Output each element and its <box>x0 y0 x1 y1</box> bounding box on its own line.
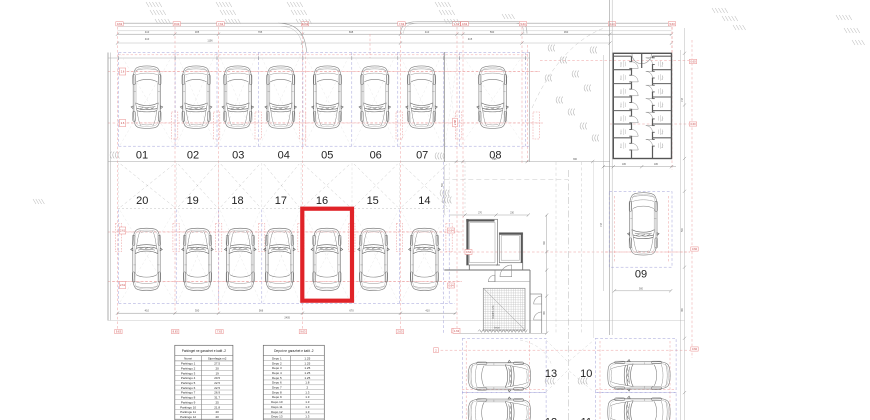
svg-text:20.5: 20.5 <box>214 376 220 380</box>
svg-text:2.61: 2.61 <box>120 283 126 287</box>
svg-text:Depo: Depo <box>620 89 622 94</box>
svg-text:1.63: 1.63 <box>454 329 460 333</box>
svg-text:Parkingu 12: Parkingu 12 <box>180 415 196 419</box>
svg-text:12: 12 <box>545 417 557 420</box>
svg-text:Depo: Depo <box>662 62 664 67</box>
svg-text:03: 03 <box>232 150 244 162</box>
svg-text:Parkingu 7: Parkingu 7 <box>181 391 196 395</box>
svg-text:Depo: Depo <box>662 103 664 108</box>
svg-text:Depo 12: Depo 12 <box>271 410 283 414</box>
svg-text:1.25: 1.25 <box>304 371 310 375</box>
svg-text:Depo: Depo <box>620 75 622 80</box>
svg-text:Depo: Depo <box>662 89 664 94</box>
svg-text:Parkingu 1: Parkingu 1 <box>181 362 196 366</box>
svg-text:0.60: 0.60 <box>690 60 696 64</box>
svg-text:500: 500 <box>639 287 644 290</box>
svg-text:19: 19 <box>187 195 199 207</box>
svg-text:Depo 10: Depo 10 <box>271 400 283 404</box>
svg-text:Depo 1: Depo 1 <box>272 356 282 360</box>
svg-text:Depo 7: Depo 7 <box>272 386 282 390</box>
svg-text:RAMPA 12%: RAMPA 12% <box>492 305 495 318</box>
svg-text:31.7: 31.7 <box>214 396 220 400</box>
svg-text:5.63: 5.63 <box>520 22 526 26</box>
svg-text:7.63: 7.63 <box>218 22 224 26</box>
svg-text:2.6: 2.6 <box>121 70 125 74</box>
svg-text:1.25: 1.25 <box>304 361 310 365</box>
svg-text:410: 410 <box>425 30 430 34</box>
svg-text:9.63: 9.63 <box>117 22 123 26</box>
svg-text:1.8: 1.8 <box>305 381 310 385</box>
svg-text:2.63: 2.63 <box>397 330 403 334</box>
svg-text:Depo: Depo <box>662 75 664 80</box>
svg-text:7.63: 7.63 <box>399 22 405 26</box>
svg-text:18: 18 <box>231 195 243 207</box>
svg-text:8.63: 8.63 <box>174 22 180 26</box>
svg-text:22.5: 22.5 <box>214 381 220 385</box>
svg-text:22.5: 22.5 <box>214 386 220 390</box>
svg-text:0.64: 0.64 <box>466 250 472 254</box>
svg-text:410: 410 <box>145 309 150 313</box>
svg-text:Depo: Depo <box>620 103 622 108</box>
svg-text:180: 180 <box>654 163 659 166</box>
svg-text:1.25: 1.25 <box>304 356 310 360</box>
svg-text:02: 02 <box>187 150 199 162</box>
svg-text:Parkingu 10: Parkingu 10 <box>180 405 196 409</box>
svg-text:566: 566 <box>259 309 264 313</box>
svg-text:Depo 3: Depo 3 <box>272 366 282 370</box>
svg-text:410: 410 <box>425 309 430 313</box>
svg-text:Depo 11: Depo 11 <box>271 405 282 409</box>
svg-text:Parkingu 2: Parkingu 2 <box>181 366 196 370</box>
svg-text:14: 14 <box>418 195 430 207</box>
svg-text:20: 20 <box>215 415 219 419</box>
svg-text:698: 698 <box>349 30 354 34</box>
svg-text:Depo 2: Depo 2 <box>272 361 282 365</box>
svg-text:Depo 9: Depo 9 <box>272 395 282 399</box>
svg-text:Depo 6: Depo 6 <box>272 381 282 385</box>
svg-text:Depo: Depo <box>620 62 622 67</box>
svg-text:5.63: 5.63 <box>669 22 675 26</box>
svg-text:Depo: Depo <box>620 130 622 135</box>
svg-text:Siperfaqja m2: Siperfaqja m2 <box>208 357 227 361</box>
svg-text:305: 305 <box>195 30 200 34</box>
svg-text:26.9: 26.9 <box>214 391 220 395</box>
svg-text:16: 16 <box>316 195 328 207</box>
svg-text:Parkingu 6: Parkingu 6 <box>181 386 196 390</box>
svg-text:Parkingu 11: Parkingu 11 <box>180 410 196 414</box>
svg-text:Parkingu 8: Parkingu 8 <box>181 396 196 400</box>
svg-text:360: 360 <box>564 30 569 34</box>
svg-text:1.3: 1.3 <box>305 390 310 394</box>
svg-text:04: 04 <box>278 150 290 162</box>
svg-text:1.3: 1.3 <box>305 415 310 419</box>
svg-text:795: 795 <box>258 30 263 34</box>
svg-text:Depo: Depo <box>662 130 664 135</box>
svg-text:7.63: 7.63 <box>217 330 223 334</box>
svg-text:Depo 5: Depo 5 <box>272 376 282 380</box>
svg-text:09: 09 <box>635 269 647 281</box>
svg-text:Depo: Depo <box>620 116 622 121</box>
svg-text:08: 08 <box>489 150 501 162</box>
svg-text:2.68: 2.68 <box>453 119 457 125</box>
svg-text:Parkingu 5: Parkingu 5 <box>181 381 196 385</box>
svg-text:1.3: 1.3 <box>305 405 310 409</box>
svg-text:410: 410 <box>145 30 150 34</box>
svg-text:0.63: 0.63 <box>462 22 468 26</box>
svg-text:25: 25 <box>215 400 219 404</box>
svg-text:beton: beton <box>494 326 501 329</box>
svg-text:20: 20 <box>215 366 219 370</box>
svg-text:Depo: Depo <box>620 144 622 149</box>
svg-text:Parkingu 9: Parkingu 9 <box>181 400 196 404</box>
svg-text:1.3: 1.3 <box>305 400 310 404</box>
svg-text:Depo: Depo <box>662 144 664 149</box>
svg-text:1.3: 1.3 <box>305 395 310 399</box>
svg-text:20: 20 <box>136 195 148 207</box>
svg-text:670: 670 <box>349 309 354 313</box>
svg-text:9.63: 9.63 <box>116 330 122 334</box>
svg-text:590: 590 <box>490 30 495 34</box>
svg-text:Depo 4: Depo 4 <box>272 371 282 375</box>
svg-text:15: 15 <box>367 195 379 207</box>
svg-text:2405: 2405 <box>284 316 290 319</box>
svg-text:07: 07 <box>416 150 428 162</box>
svg-text:Numri: Numri <box>184 357 192 361</box>
svg-text:0.64: 0.64 <box>448 284 454 288</box>
svg-text:360: 360 <box>573 158 578 161</box>
svg-text:Depo 8: Depo 8 <box>272 390 282 394</box>
svg-text:0.60: 0.60 <box>692 247 698 251</box>
svg-text:2.6: 2.6 <box>121 121 125 125</box>
svg-text:0.64: 0.64 <box>448 229 454 233</box>
svg-text:180: 180 <box>622 163 627 166</box>
svg-text:2.61: 2.61 <box>120 229 126 233</box>
svg-text:19: 19 <box>215 371 219 375</box>
svg-text:415: 415 <box>468 37 473 41</box>
svg-text:Depo: Depo <box>662 116 664 121</box>
svg-text:0.60: 0.60 <box>690 122 696 126</box>
svg-text:1.3: 1.3 <box>305 410 310 414</box>
svg-text:27.5: 27.5 <box>214 362 220 366</box>
svg-text:20: 20 <box>215 410 219 414</box>
svg-text:300: 300 <box>195 309 200 313</box>
svg-text:11: 11 <box>581 417 592 420</box>
svg-text:Parkingu 4: Parkingu 4 <box>181 376 196 380</box>
svg-text:410: 410 <box>145 37 150 41</box>
svg-text:1.25: 1.25 <box>304 376 310 380</box>
svg-text:1106: 1106 <box>207 40 213 43</box>
svg-text:Parkingu 3: Parkingu 3 <box>181 371 196 375</box>
svg-text:1.25: 1.25 <box>304 366 310 370</box>
svg-text:9.63: 9.63 <box>300 330 306 334</box>
svg-text:0.60: 0.60 <box>692 347 698 351</box>
svg-text:21.8: 21.8 <box>214 405 220 409</box>
svg-text:17: 17 <box>275 195 287 207</box>
svg-text:06: 06 <box>370 150 382 162</box>
svg-text:8.63: 8.63 <box>173 330 179 334</box>
svg-text:05: 05 <box>321 150 333 162</box>
svg-text:Depo 13: Depo 13 <box>271 415 283 419</box>
svg-text:01: 01 <box>136 150 148 162</box>
svg-text:Depot ne garazhet e katit -2: Depot ne garazhet e katit -2 <box>274 349 314 353</box>
svg-text:Parkinget ne garazhet e katit: Parkinget ne garazhet e katit -2 <box>182 349 227 353</box>
